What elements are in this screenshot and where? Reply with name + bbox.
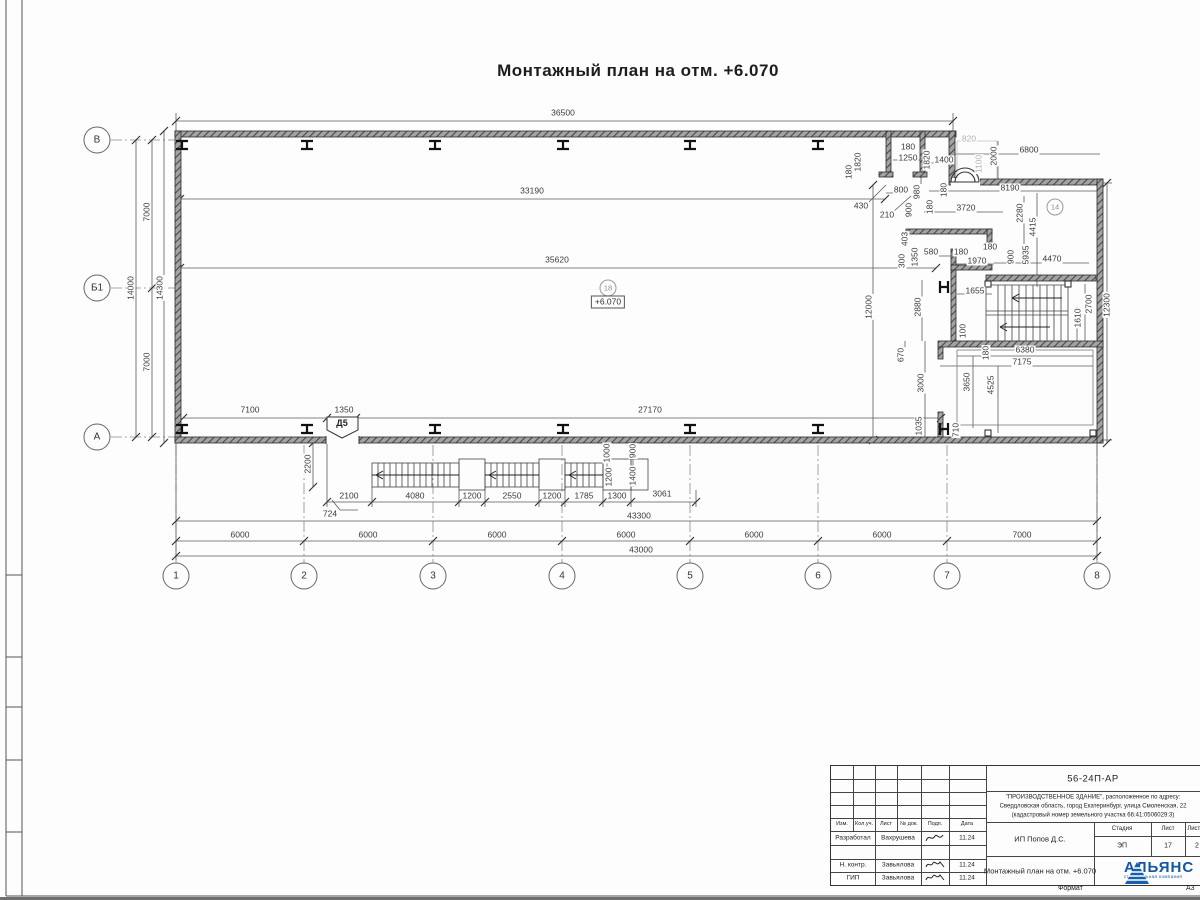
dim-label: 180 <box>982 345 991 361</box>
dim-label: 7000 <box>143 202 152 223</box>
dim-label: 7000 <box>143 352 152 373</box>
signature-icon <box>924 872 946 884</box>
document-number: 56-24П-АР <box>1067 774 1118 785</box>
dim-label: 43000 <box>628 546 654 555</box>
dim-label: 7000 <box>1012 531 1033 540</box>
dim-label: 2000 <box>990 146 999 167</box>
dim-label: 1970 <box>967 257 988 266</box>
dim-label: 1655 <box>965 287 986 296</box>
dim-label: 6000 <box>616 531 637 540</box>
room-tag: 14 <box>1047 199 1064 216</box>
dim-label: 2880 <box>914 297 923 318</box>
tb-col-data: Дата <box>961 821 973 827</box>
dim-label: 980 <box>913 184 922 200</box>
title-block: Изм. Кол.уч. Лист № док. Подп. Дата Разр… <box>830 765 1200 886</box>
dim-label: 180 <box>926 199 935 215</box>
dim-label: 8190 <box>1000 184 1021 193</box>
dim-label: 300 <box>898 253 907 269</box>
tb-role-developer: Разработал <box>835 835 870 842</box>
company-logo: АЛЬЯНС строительная компания <box>1124 861 1194 879</box>
dim-label: 43300 <box>626 512 652 521</box>
tb-col-koluch: Кол.уч. <box>855 821 873 827</box>
axis-bubble: 1 <box>163 563 190 590</box>
page-title: Монтажный план на отм. +6.070 <box>497 61 779 81</box>
dim-label: 6000 <box>744 531 765 540</box>
dim-label: 3720 <box>956 204 977 213</box>
dim-label: 1785 <box>574 492 595 501</box>
project-address-line3: (кадастровый номер земельного участка 66… <box>1012 812 1175 821</box>
dim-label: 1035 <box>915 416 924 437</box>
elevation-mark: +6.070 <box>591 296 625 309</box>
room-tag: 18 <box>600 280 617 297</box>
dim-label: 14300 <box>156 275 165 301</box>
tb-role-ncontrol: Н. контр. <box>840 862 867 869</box>
dim-label: 2100 <box>339 492 360 501</box>
dim-label: 1350 <box>911 247 920 268</box>
axis-bubble: В <box>84 127 111 154</box>
format-label: Формат <box>1058 885 1083 892</box>
dim-label: 1400 <box>629 466 638 487</box>
dim-label: 900 <box>1007 249 1016 265</box>
dim-label: 2200 <box>304 454 313 475</box>
stage-value: ЭП <box>1117 843 1127 850</box>
dim-label: 710 <box>952 422 961 438</box>
tb-role-gip: ГИП <box>847 875 860 882</box>
sheet-label: Лист <box>1161 826 1174 832</box>
dim-label: 6000 <box>872 531 893 540</box>
axis-bubble: 7 <box>934 563 961 590</box>
dim-label: 6000 <box>230 531 251 540</box>
dim-label: 580 <box>923 248 939 257</box>
dim-label: 900 <box>629 443 638 459</box>
dim-label: 1400 <box>934 156 955 165</box>
stage-label: Стадия <box>1112 826 1132 832</box>
dim-label: 430 <box>853 202 869 211</box>
dim-label: 180 <box>940 182 949 198</box>
dim-label: 1610 <box>1074 308 1083 329</box>
signature-icon <box>924 832 946 844</box>
dim-label: 14000 <box>127 275 136 301</box>
dim-label: 180 <box>900 143 916 152</box>
axis-bubble: А <box>84 424 111 451</box>
axis-bubble: 8 <box>1084 563 1111 590</box>
dim-label: 4080 <box>405 492 426 501</box>
axis-bubble: 2 <box>291 563 318 590</box>
dim-label: 1200 <box>542 492 563 501</box>
drawing-title-cell: Монтажный план на отм. +6.070 <box>984 867 1096 876</box>
dim-label: 210 <box>879 211 895 220</box>
dim-label: 800 <box>893 186 909 195</box>
dim-label: 7100 <box>240 406 261 415</box>
axis-bubble: 4 <box>549 563 576 590</box>
tb-date-gip: 11.24 <box>959 875 975 882</box>
axis-bubble: 3 <box>420 563 447 590</box>
tb-col-izm: Изм. <box>836 821 848 827</box>
dim-label: 4470 <box>1042 255 1063 264</box>
axis-grid-lines <box>111 140 1097 563</box>
dim-label: 670 <box>897 347 906 363</box>
signature-icon <box>924 859 946 871</box>
tb-name-developer: Вахрушева <box>881 835 915 842</box>
axis-bubble: 5 <box>677 563 704 590</box>
internal-staircase <box>986 285 1068 341</box>
tb-name-ncontrol: Завьялова <box>882 862 914 869</box>
dim-label: 27170 <box>637 406 663 415</box>
dim-label: 1200 <box>462 492 483 501</box>
project-address-line2: Свердловская область, город Екатеринбург… <box>1000 803 1187 812</box>
dim-label: 2280 <box>1016 203 1025 224</box>
dim-label: 1100 <box>975 154 984 174</box>
dim-label: 3000 <box>917 373 926 394</box>
dim-label: 12300 <box>1103 292 1112 318</box>
tb-date-ncontrol: 11.24 <box>959 862 975 869</box>
axis-bubble: 6 <box>805 563 832 590</box>
dim-label: 180 <box>845 164 854 180</box>
dim-label: 1000 <box>603 443 612 464</box>
dim-label: 4525 <box>987 375 996 396</box>
dim-label: 2700 <box>1085 294 1094 315</box>
dim-label: 403 <box>901 231 910 247</box>
dim-label: 35620 <box>544 256 570 265</box>
dim-label: 6800 <box>1019 146 1040 155</box>
dim-label: 6000 <box>358 531 379 540</box>
dim-label: 180 <box>982 243 998 252</box>
logo-triangle-icon <box>1124 861 1150 885</box>
dim-label: 1300 <box>607 492 628 501</box>
sheets-label: Листов <box>1187 826 1200 832</box>
dim-label: 6000 <box>487 531 508 540</box>
dim-label: 6380 <box>1015 346 1036 355</box>
door-tag-label: Д5 <box>336 418 347 428</box>
dim-label: 3061 <box>652 490 673 499</box>
dim-label: 1250 <box>898 154 919 163</box>
dim-label: 1200 <box>605 467 614 488</box>
dim-label: 1820 <box>854 152 863 173</box>
client-name: ИП Попов Д.С. <box>1014 835 1065 844</box>
dim-label: 3650 <box>963 372 972 393</box>
dim-label: 4415 <box>1029 217 1038 238</box>
dim-label: 820 <box>961 135 977 144</box>
project-address-line1: "ПРОИЗВОДСТВЕННОЕ ЗДАНИЕ", расположенное… <box>1006 794 1181 803</box>
dim-label: 900 <box>905 202 914 218</box>
axis-bubble: Б1 <box>84 275 111 302</box>
dim-label: 724 <box>322 510 338 519</box>
dim-label: 36500 <box>550 109 576 118</box>
dim-label: 100 <box>959 323 968 339</box>
tb-name-gip: Завьялова <box>882 875 914 882</box>
dim-label: 33190 <box>519 187 545 196</box>
tb-col-ndok: № док. <box>900 821 918 827</box>
format-value: А3 <box>1186 885 1195 892</box>
dim-label: 12000 <box>865 294 874 320</box>
drawing-sheet: Монтажный план на отм. +6.070 3650033190… <box>0 0 1200 900</box>
tb-col-list: Лист <box>880 821 892 827</box>
sheets-total: 2 <box>1195 843 1199 850</box>
dim-label: 1820 <box>923 150 932 171</box>
dim-label: 1350 <box>334 406 355 415</box>
tb-date-developer: 11.24 <box>959 835 975 842</box>
dim-label: 5935 <box>1022 245 1031 266</box>
dim-label: 7175 <box>1012 358 1033 367</box>
sheet-number: 17 <box>1164 843 1172 850</box>
tb-col-podp: Подп. <box>928 821 943 827</box>
dim-label: 2550 <box>502 492 523 501</box>
